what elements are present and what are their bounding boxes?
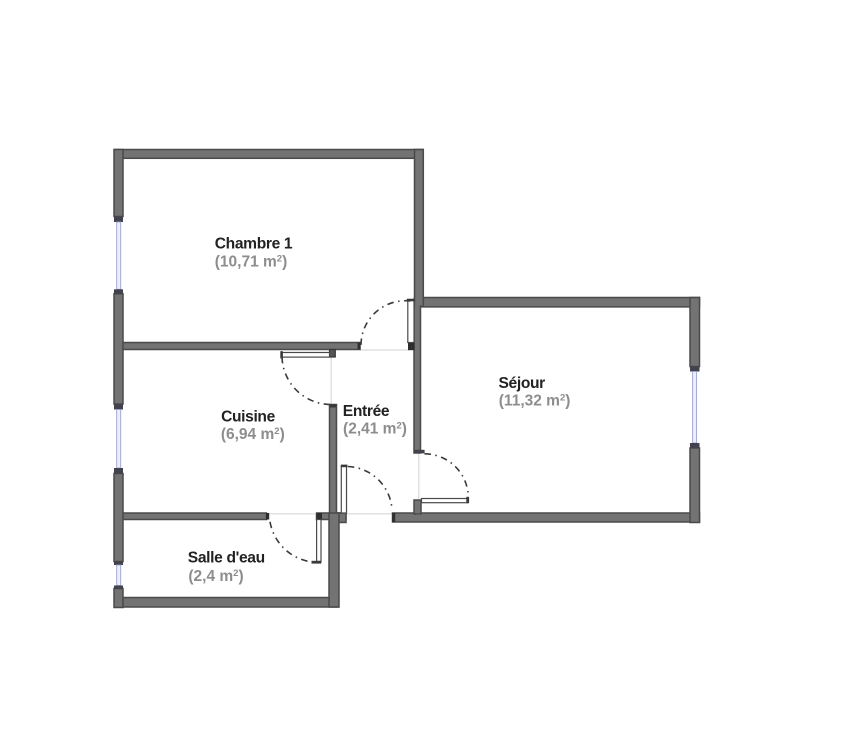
svg-text:Salle d'eau: Salle d'eau <box>188 550 265 567</box>
svg-text:(10,71 m2): (10,71 m2) <box>215 254 288 271</box>
svg-text:(6,94 m2): (6,94 m2) <box>221 426 285 443</box>
svg-text:(2,4 m2): (2,4 m2) <box>188 568 243 585</box>
svg-text:Chambre 1: Chambre 1 <box>215 236 293 253</box>
svg-text:(11,32 m2): (11,32 m2) <box>499 393 571 410</box>
svg-text:Cuisine: Cuisine <box>221 408 276 425</box>
svg-text:(2,41 m2): (2,41 m2) <box>343 421 407 438</box>
svg-text:Entrée: Entrée <box>343 403 390 420</box>
svg-text:Séjour: Séjour <box>498 375 545 392</box>
